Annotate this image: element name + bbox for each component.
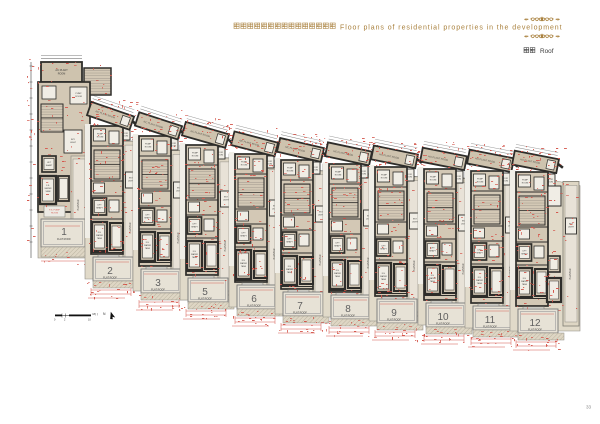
svg-text:TANK: TANK xyxy=(381,278,387,281)
svg-text:WATER: WATER xyxy=(476,279,484,282)
svg-text:FLAT ROOF: FLAT ROOF xyxy=(293,312,307,315)
svg-text:SHAFT: SHAFT xyxy=(476,252,483,255)
svg-text:WATER: WATER xyxy=(45,187,53,190)
svg-text:SHAFT: SHAFT xyxy=(240,235,247,238)
svg-text:PUMP: PUMP xyxy=(381,175,388,177)
svg-text:F.S.: F.S. xyxy=(242,260,246,262)
svg-text:7: 7 xyxy=(297,301,303,312)
svg-text:FLAT ROOF: FLAT ROOF xyxy=(387,319,401,322)
svg-text:PLANTER: PLANTER xyxy=(129,222,132,233)
svg-text:ROOM: ROOM xyxy=(192,156,199,158)
svg-text:PLANTER: PLANTER xyxy=(177,232,180,243)
svg-text:WATER: WATER xyxy=(96,234,104,237)
svg-text:PLANTER: PLANTER xyxy=(77,199,80,210)
svg-text:FLAT ROOF: FLAT ROOF xyxy=(103,277,117,280)
svg-text:LIGHT: LIGHT xyxy=(70,142,77,144)
svg-text:ROOM: ROOM xyxy=(522,183,529,185)
svg-text:PUMP: PUMP xyxy=(287,168,294,170)
svg-text:FLAT ROOF: FLAT ROOF xyxy=(483,326,497,329)
svg-text:F.S. PUMP: F.S. PUMP xyxy=(49,210,60,212)
svg-text:6: 6 xyxy=(251,294,257,305)
svg-text:PLANTER: PLANTER xyxy=(569,268,572,279)
svg-text:SHAFT: SHAFT xyxy=(96,207,103,210)
svg-text:ROOM: ROOM xyxy=(75,96,82,98)
svg-text:FLAT ROOF: FLAT ROOF xyxy=(57,238,71,241)
svg-text:TANK: TANK xyxy=(241,265,247,268)
svg-text:M( ): M( ) xyxy=(93,312,98,316)
svg-text:ROOM: ROOM xyxy=(335,175,342,177)
svg-text:WATER: WATER xyxy=(144,244,152,247)
svg-text:WATER: WATER xyxy=(240,262,248,265)
svg-text:SHAFT: SHAFT xyxy=(521,253,528,256)
svg-text:F.S.: F.S. xyxy=(382,273,386,275)
svg-text:PUMP: PUMP xyxy=(75,93,82,95)
svg-text:FLAT ROOF: FLAT ROOF xyxy=(247,305,261,308)
svg-text:FLAT ROOF: FLAT ROOF xyxy=(341,315,355,318)
svg-text:ROOM: ROOM xyxy=(241,165,248,167)
svg-text:ROOM: ROOM xyxy=(381,178,388,180)
svg-text:F.S.: F.S. xyxy=(146,242,150,244)
svg-text:Roof: Roof xyxy=(540,48,554,55)
svg-text:TANK: TANK xyxy=(97,237,103,240)
svg-text:SKY: SKY xyxy=(71,139,76,141)
svg-text:F.S.: F.S. xyxy=(431,275,435,277)
svg-text:F.S.: F.S. xyxy=(288,266,292,268)
svg-text:ROOM: ROOM xyxy=(51,213,58,215)
svg-text:ROOM: ROOM xyxy=(145,147,152,149)
svg-text:PUMP: PUMP xyxy=(335,172,342,174)
svg-text:FLAT ROOF: FLAT ROOF xyxy=(436,323,450,326)
svg-text:PUMP: PUMP xyxy=(192,153,199,155)
svg-text:SKY: SKY xyxy=(413,219,418,221)
svg-text:WATER: WATER xyxy=(286,268,294,271)
svg-text:F.S.: F.S. xyxy=(193,251,197,253)
svg-text:SKY: SKY xyxy=(224,197,229,199)
svg-text:TANK: TANK xyxy=(145,247,151,250)
svg-text:TANK: TANK xyxy=(477,282,483,285)
svg-text:ROOM: ROOM xyxy=(287,171,294,173)
svg-text:FLAT ROOF: FLAT ROOF xyxy=(198,298,212,301)
svg-text:Floor plans of residential pro: Floor plans of residential properties in… xyxy=(340,24,563,31)
svg-text:ROOM: ROOM xyxy=(97,137,104,139)
svg-text:SHAFT: SHAFT xyxy=(334,245,341,248)
svg-text:WATER: WATER xyxy=(191,253,199,256)
svg-text:PUMP: PUMP xyxy=(477,179,484,181)
svg-text:ROOM: ROOM xyxy=(430,180,437,182)
svg-text:SHAFT: SHAFT xyxy=(429,250,436,253)
svg-text:9: 9 xyxy=(391,308,397,319)
svg-text:33: 33 xyxy=(586,405,592,410)
svg-text:3: 3 xyxy=(155,278,161,289)
svg-text:WATER: WATER xyxy=(334,272,342,275)
svg-text:PUMP: PUMP xyxy=(522,180,529,182)
svg-text:TANK: TANK xyxy=(45,190,51,193)
svg-text:ROOM: ROOM xyxy=(58,73,65,76)
svg-text:F.S.: F.S. xyxy=(46,185,50,187)
svg-text:SHAFT: SHAFT xyxy=(46,164,53,167)
svg-text:TANK: TANK xyxy=(287,271,293,274)
svg-text:SHAFT: SHAFT xyxy=(380,248,387,251)
svg-text:2: 2 xyxy=(107,266,113,277)
svg-text:PUMP: PUMP xyxy=(145,144,152,146)
svg-text:SHAFT: SHAFT xyxy=(286,241,293,244)
svg-text:PLANTER: PLANTER xyxy=(462,263,465,274)
svg-text:F.S.: F.S. xyxy=(336,270,340,272)
svg-text:WATER: WATER xyxy=(429,277,437,280)
svg-text:F.S.: F.S. xyxy=(98,232,102,234)
svg-text:PLANTER: PLANTER xyxy=(319,254,322,265)
svg-text:11: 11 xyxy=(485,315,496,326)
svg-text:F.S.: F.S. xyxy=(478,277,482,279)
svg-text:8: 8 xyxy=(345,304,351,315)
svg-text:FLAT ROOF: FLAT ROOF xyxy=(528,329,542,332)
svg-text:SHAFT: SHAFT xyxy=(144,217,151,220)
svg-text:PLANTER: PLANTER xyxy=(224,240,227,251)
svg-text:ROOM: ROOM xyxy=(477,182,484,184)
svg-text:FLAT ROOF: FLAT ROOF xyxy=(151,289,165,292)
svg-text:WATER: WATER xyxy=(380,275,388,278)
svg-text:PUMP: PUMP xyxy=(430,177,437,179)
svg-text:12: 12 xyxy=(529,318,541,329)
svg-text:5: 5 xyxy=(202,287,208,298)
svg-text:PLANTER: PLANTER xyxy=(413,260,416,271)
svg-text:TANK: TANK xyxy=(335,275,341,278)
svg-text:LIGHT: LIGHT xyxy=(568,227,575,229)
svg-text:1: 1 xyxy=(61,227,67,238)
svg-text:PUMP: PUMP xyxy=(97,134,104,136)
svg-text:TANK: TANK xyxy=(522,283,528,286)
svg-text:SHAFT: SHAFT xyxy=(191,226,198,229)
svg-text:10: 10 xyxy=(437,312,449,323)
svg-text:F.S.: F.S. xyxy=(523,278,527,280)
